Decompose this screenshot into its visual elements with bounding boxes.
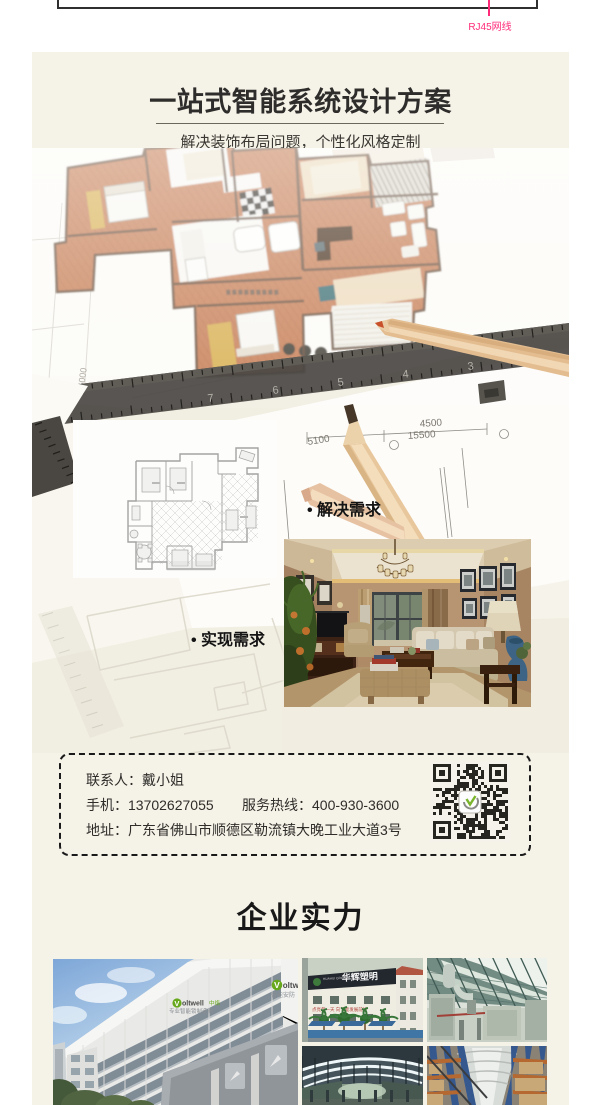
svg-text:智能安防: 智能安防 xyxy=(271,991,295,999)
svg-text:oltwell: oltwell xyxy=(283,981,298,990)
svg-text:专业智能锁制造商: 专业智能锁制造商 xyxy=(169,1007,214,1015)
svg-text:中络: 中络 xyxy=(209,999,221,1007)
svg-text:15500: 15500 xyxy=(407,429,436,442)
svg-text:V: V xyxy=(274,980,280,990)
svg-text:oltwell: oltwell xyxy=(182,1001,204,1008)
svg-text:4500: 4500 xyxy=(419,417,442,430)
svg-text:点亮每一天 向节能发展前进: 点亮每一天 向节能发展前进 xyxy=(312,1006,368,1013)
